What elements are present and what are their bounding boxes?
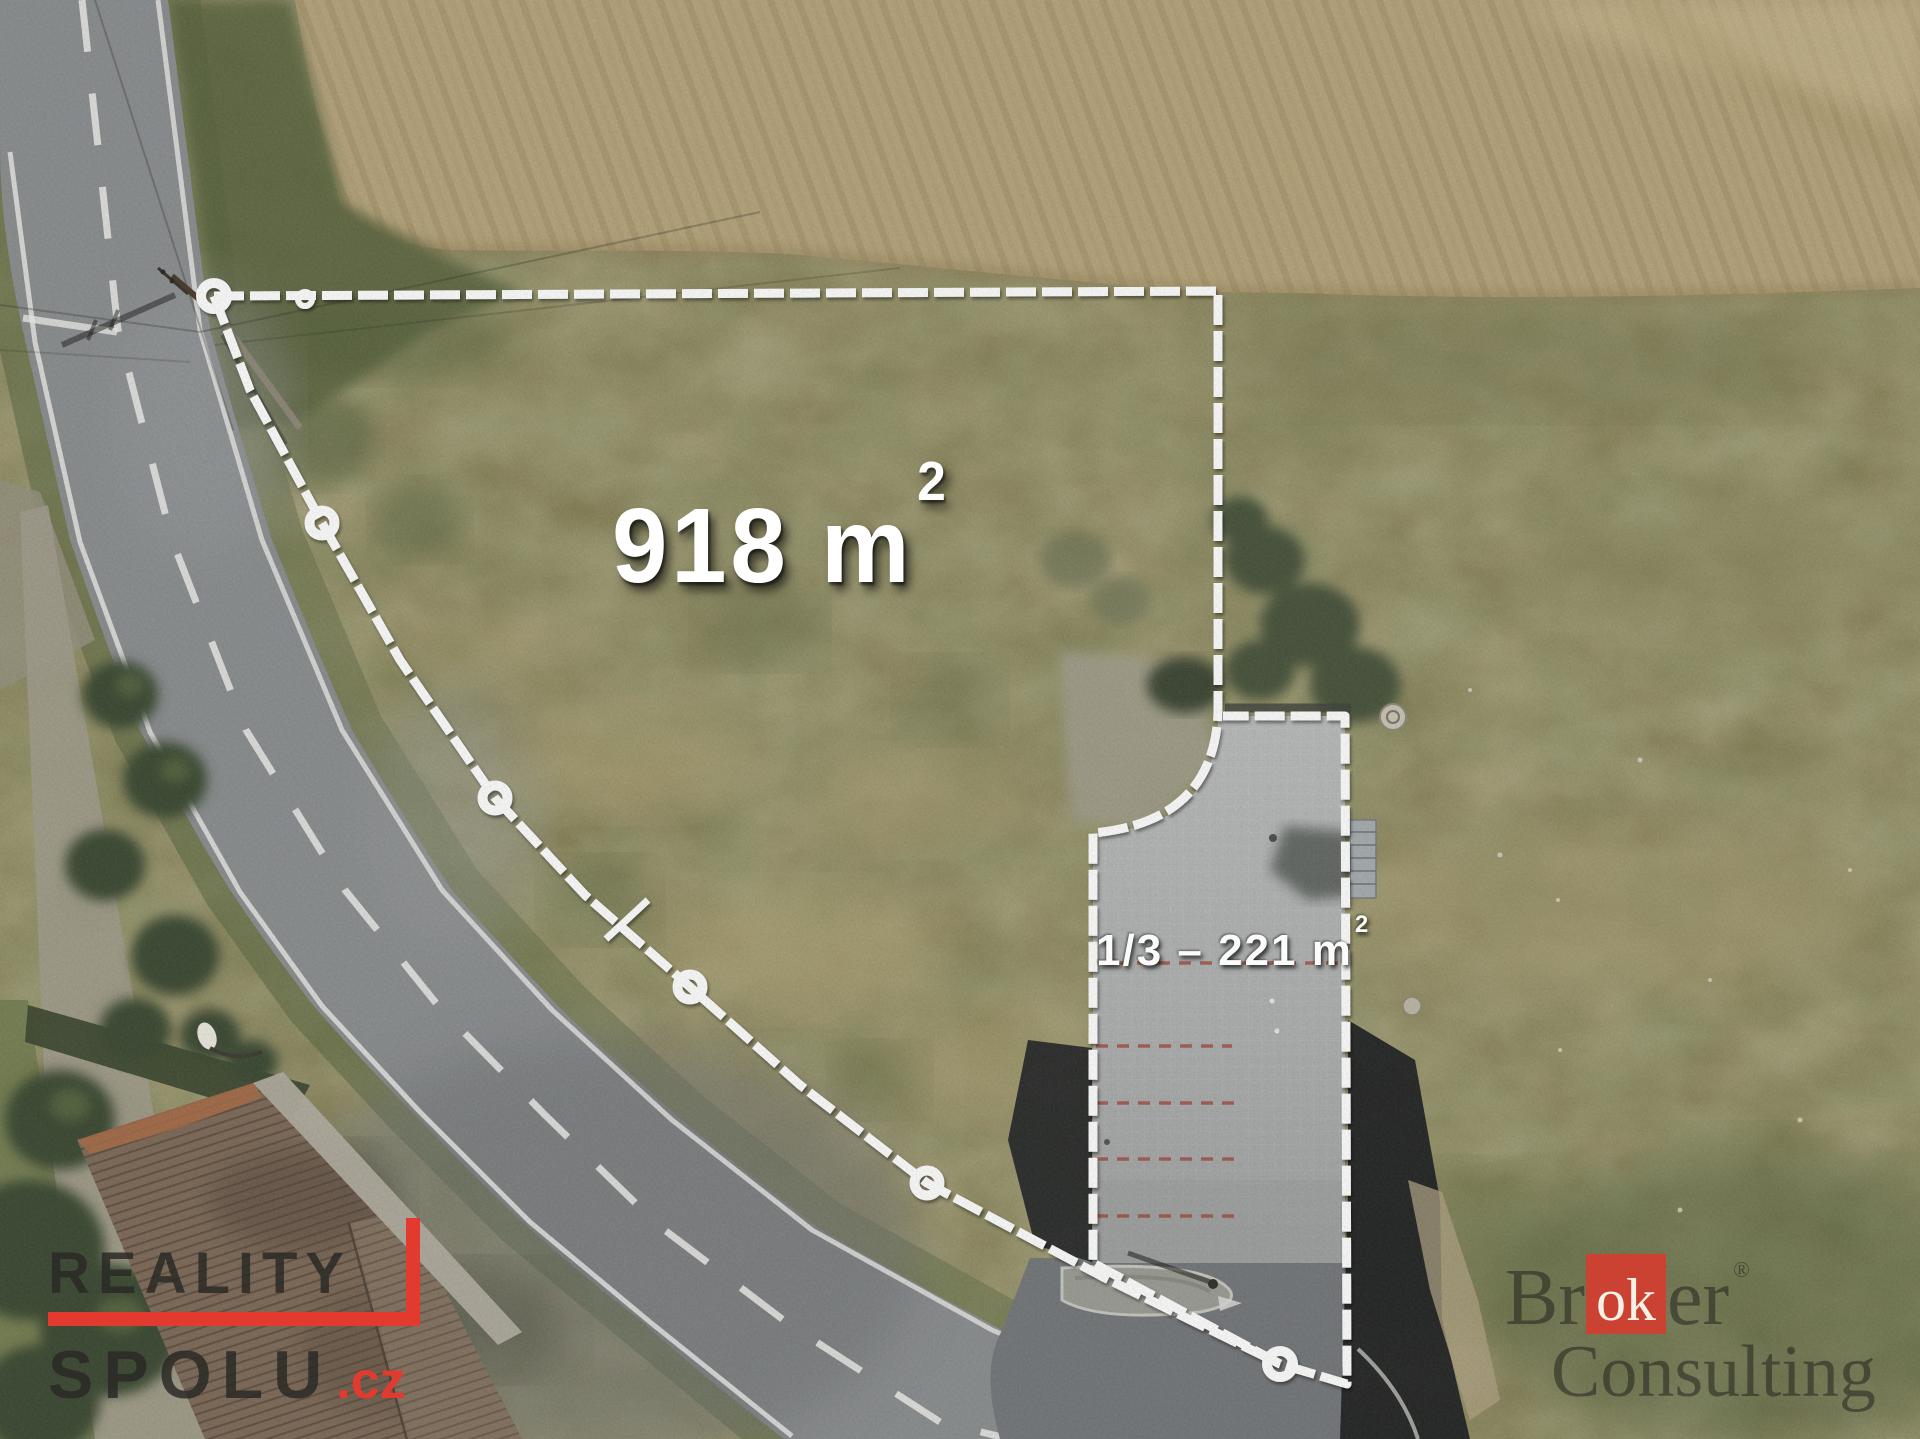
grain-light	[0, 0, 1920, 1439]
aerial-scene	[0, 0, 1920, 1439]
aerial-photo-land-plot: 918 m2 1/3 – 221 m2 REALITY SPOLU .cz Br…	[0, 0, 1920, 1439]
